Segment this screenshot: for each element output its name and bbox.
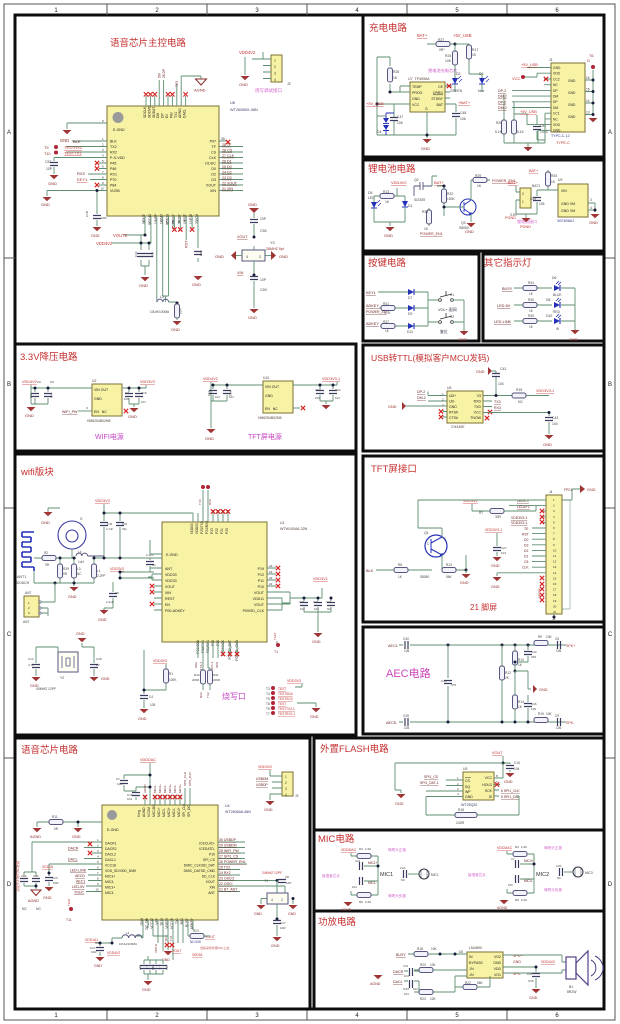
svg-text:VDD11: VDD11 <box>253 597 264 601</box>
svg-text:0R*: 0R* <box>439 48 445 52</box>
svg-text:T5: T5 <box>266 697 270 701</box>
svg-text:DACL1: DACL1 <box>105 858 116 862</box>
svg-text:NC: NC <box>518 400 523 404</box>
svg-text:C31: C31 <box>403 964 409 968</box>
svg-text:SDA: SDA <box>194 662 198 668</box>
svg-text:VCC: VCC <box>512 76 521 81</box>
svg-text:C27: C27 <box>280 921 286 925</box>
svg-text:104: 104 <box>314 607 319 611</box>
svg-text:RXD: RXD <box>474 400 482 404</box>
svg-text:3: 3 <box>590 198 592 202</box>
svg-text:4.7P: 4.7P <box>28 663 34 667</box>
svg-text:2.2PF: 2.2PF <box>97 574 106 578</box>
svg-text:Q3: Q3 <box>461 221 466 225</box>
svg-text:GND: GND <box>543 442 552 447</box>
svg-text:SPI1_CS: SPI1_CS <box>424 775 439 779</box>
svg-text:VDD3V3-1: VDD3V3-1 <box>536 389 554 393</box>
svg-text:ICECLKD-: ICECLKD- <box>199 842 215 846</box>
svg-text:VDD4V2: VDD4V2 <box>541 960 555 964</box>
svg-text:D6: D6 <box>552 276 556 280</box>
svg-text:C56: C56 <box>199 250 203 256</box>
svg-text:D7: D7 <box>408 296 412 300</box>
svg-text:21 脚屏: 21 脚屏 <box>470 602 497 612</box>
svg-text:T11: T11 <box>66 918 72 922</box>
svg-text:21 XIN: 21 XIN <box>222 187 233 191</box>
svg-text:125: 125 <box>531 707 536 711</box>
svg-text:3216CH: 3216CH <box>16 581 30 585</box>
svg-text:RX1: RX1 <box>110 173 117 177</box>
svg-text:SDCLK: SDCLK <box>143 106 147 118</box>
svg-text:104: 104 <box>552 422 558 426</box>
svg-text:P46: P46 <box>110 167 116 171</box>
svg-text:C59: C59 <box>260 288 267 292</box>
svg-text:5.1K: 5.1K <box>495 130 503 134</box>
svg-text:SPI1_CLK: SPI1_CLK <box>183 772 187 786</box>
svg-text:11: 11 <box>553 554 556 558</box>
svg-text:VCC: VCC <box>412 103 420 107</box>
svg-text:K1: K1 <box>450 293 454 297</box>
svg-text:26 D1: 26 D1 <box>222 159 232 163</box>
svg-text:C49: C49 <box>403 714 409 718</box>
svg-text:106: 106 <box>151 252 155 257</box>
svg-text:AGND: AGND <box>178 108 182 118</box>
svg-text:L4: L4 <box>78 550 82 554</box>
svg-text:VDDDAC: VDDDAC <box>341 848 357 852</box>
svg-text:E-GND: E-GND <box>166 553 178 557</box>
svg-text:MIC3: MIC3 <box>585 871 593 875</box>
svg-text:U1: U1 <box>280 521 285 525</box>
svg-text:RX2: RX2 <box>110 151 117 155</box>
svg-text:C43: C43 <box>552 416 558 420</box>
svg-text:VCC: VCC <box>474 411 482 415</box>
svg-text:33R: 33R <box>495 515 502 519</box>
svg-text:GND: GND <box>388 405 397 409</box>
svg-text:BLUE: BLUE <box>553 293 562 297</box>
svg-text:C21: C21 <box>313 600 319 604</box>
svg-text:GND: GND <box>94 397 102 401</box>
svg-text:A: A <box>7 130 11 136</box>
svg-text:GND: GND <box>138 717 147 721</box>
svg-text:RTS#: RTS# <box>449 411 458 415</box>
svg-text:RX2: RX2 <box>199 692 203 698</box>
svg-text:RX3: RX3 <box>77 171 86 176</box>
svg-text:MIC1+: MIC1+ <box>368 861 378 865</box>
svg-text:C63: C63 <box>315 388 321 392</box>
svg-text:WT2606BX-48N: WT2606BX-48N <box>230 108 258 112</box>
svg-text:MIC4-: MIC4- <box>173 785 177 793</box>
svg-text:R37: R37 <box>383 320 389 324</box>
svg-text:VCC: VCC <box>485 776 493 780</box>
svg-text:D0: D0 <box>524 538 528 542</box>
svg-text:VDD: VDD <box>553 72 561 76</box>
svg-text:P70: P70 <box>110 178 116 182</box>
svg-text:VDD33: VDD33 <box>190 523 194 534</box>
svg-text:LM4890: LM4890 <box>469 946 482 950</box>
svg-text:XOUT: XOUT <box>206 880 215 884</box>
svg-text:R2: R2 <box>44 551 48 555</box>
svg-text:GND: GND <box>460 581 469 585</box>
svg-text:Q1: Q1 <box>424 531 429 535</box>
svg-text:AGND: AGND <box>30 835 41 839</box>
svg-text:VDD: VDD <box>494 967 502 971</box>
svg-text:GND: GND <box>271 944 280 948</box>
svg-text:24MHZ 12PF: 24MHZ 12PF <box>262 871 282 875</box>
svg-text:GND: GND <box>553 129 561 133</box>
svg-text:GND: GND <box>553 66 561 70</box>
svg-text:P84: P84 <box>110 184 116 188</box>
svg-text:AEC1: AEC1 <box>76 880 85 884</box>
svg-text:GND: GND <box>41 202 50 207</box>
svg-text:C14: C14 <box>28 657 34 661</box>
svg-text:STDBY: STDBY <box>431 97 443 101</box>
svg-text:HM6254B02M5: HM6254B02M5 <box>258 416 282 420</box>
svg-text:SPK-: SPK- <box>566 721 575 725</box>
svg-text:C22: C22 <box>326 600 332 604</box>
svg-text:WTW100A6-32N: WTW100A6-32N <box>280 527 308 531</box>
svg-text:DM: DM <box>157 73 161 78</box>
svg-text:R36: R36 <box>528 298 534 302</box>
svg-text:ADKEY_: ADKEY_ <box>366 304 382 308</box>
svg-text:10UH/100MA: 10UH/100MA <box>119 942 137 946</box>
svg-text:2: 2 <box>259 255 261 259</box>
svg-text:23: 23 <box>269 570 273 574</box>
svg-text:20: 20 <box>553 604 557 608</box>
svg-text:REST: REST <box>165 597 175 601</box>
svg-text:17: 17 <box>553 588 557 592</box>
svg-text:BAT1: BAT1 <box>532 184 540 188</box>
svg-text:C28: C28 <box>96 657 102 661</box>
svg-text:29 USBDM: 29 USBDM <box>219 844 237 848</box>
svg-text:R21: R21 <box>193 929 199 933</box>
svg-text:DM: DM <box>553 106 558 110</box>
svg-text:VDD3V3: VDD3V3 <box>95 499 110 503</box>
svg-text:GND: GND <box>491 564 500 568</box>
svg-text:TFT屏接口: TFT屏接口 <box>371 463 417 475</box>
svg-text:26MHZ 9pf: 26MHZ 9pf <box>266 247 284 251</box>
svg-text:+5V_USB: +5V_USB <box>366 101 384 106</box>
svg-text:VPP-K: VPP-K <box>154 944 158 953</box>
svg-text:VDD4V2: VDD4V2 <box>107 951 120 955</box>
svg-text:R20: R20 <box>420 963 426 967</box>
svg-text:BAT+: BAT+ <box>417 33 428 38</box>
svg-text:SQ: SQ <box>465 785 470 789</box>
svg-text:C42: C42 <box>500 367 506 371</box>
svg-text:NC/10K: NC/10K <box>190 940 202 944</box>
svg-text:NC: NC <box>557 876 561 880</box>
svg-text:105: 105 <box>404 726 410 730</box>
svg-text:C40: C40 <box>403 637 409 641</box>
svg-text:VDD3V3: VDD3V3 <box>140 380 155 384</box>
svg-text:XIN: XIN <box>209 886 215 890</box>
svg-text:USBDM: USBDM <box>256 777 268 781</box>
svg-text:VDDDAC: VDDDAC <box>140 758 156 762</box>
svg-text:TESTSDA: TESTSDA <box>278 692 294 696</box>
svg-text:AEC电路: AEC电路 <box>386 667 431 680</box>
svg-text:22 OSCI: 22 OSCI <box>219 882 232 886</box>
svg-text:GND: GND <box>504 780 513 784</box>
svg-text:MIC3+: MIC3+ <box>167 807 171 817</box>
svg-text:TESTSCK: TESTSCK <box>278 697 294 701</box>
svg-text:SPI1_DAT: SPI1_DAT <box>188 772 192 786</box>
svg-text:1: 1 <box>522 200 524 204</box>
svg-text:GND: GND <box>589 220 598 225</box>
svg-text:105: 105 <box>150 703 156 707</box>
svg-text:TESTRX2-1: TESTRX2-1 <box>278 712 295 716</box>
svg-text:25 D0: 25 D0 <box>222 165 232 169</box>
svg-text:10: 10 <box>96 888 100 892</box>
svg-text:C64: C64 <box>335 388 341 392</box>
svg-text:D2: D2 <box>211 173 216 177</box>
svg-text:P10: P10 <box>258 585 264 589</box>
svg-text:ANT: ANT <box>208 891 215 895</box>
svg-text:T6: T6 <box>266 707 270 711</box>
svg-text:TYPC-C-12: TYPC-C-12 <box>551 134 570 138</box>
svg-text:TE: TE <box>524 527 529 531</box>
svg-text:VUSB: VUSB <box>110 189 120 193</box>
svg-text:VDD3V3-1: VDD3V3-1 <box>322 377 340 381</box>
svg-text:T1: T1 <box>274 650 278 654</box>
svg-text:C51: C51 <box>540 124 546 128</box>
svg-text:P10: P10 <box>209 853 215 857</box>
svg-text:10P: 10P <box>46 167 53 171</box>
svg-text:NC: NC <box>553 117 558 121</box>
svg-text:NC: NC <box>77 572 82 576</box>
svg-text:TESTTX1: TESTTX1 <box>64 151 82 156</box>
svg-text:R8: R8 <box>398 563 402 567</box>
svg-text:语音芯片电路: 语音芯片电路 <box>21 744 79 756</box>
svg-text:21 BT_ANT: 21 BT_ANT <box>219 888 238 892</box>
svg-text:R32: R32 <box>447 192 453 196</box>
svg-text:U7 TP4056A: U7 TP4056A <box>408 77 430 81</box>
svg-text:23 OSCO: 23 OSCO <box>219 877 234 881</box>
svg-text:EN NC: EN NC <box>94 410 107 414</box>
svg-text:A: A <box>608 130 612 136</box>
svg-text:XOUT: XOUT <box>206 184 217 188</box>
svg-text:LED-5V: LED-5V <box>497 304 511 308</box>
svg-text:咪咚头正极: 咪咚头正极 <box>388 847 406 852</box>
svg-text:106: 106 <box>315 396 320 400</box>
svg-text:RED: RED <box>553 310 561 314</box>
svg-text:U10: U10 <box>263 376 269 380</box>
svg-text:10K: 10K <box>430 963 437 967</box>
svg-text:105: 105 <box>508 883 513 887</box>
svg-text:2.2uF: 2.2uF <box>106 600 114 604</box>
svg-text:P23: P23 <box>210 528 214 534</box>
svg-text:wifi版块: wifi版块 <box>20 466 54 478</box>
svg-text:USBDP: USBDP <box>256 783 268 787</box>
svg-text:10: 10 <box>101 187 105 191</box>
svg-text:4: 4 <box>246 255 248 259</box>
svg-text:R19: R19 <box>538 712 544 716</box>
svg-text:R7: R7 <box>479 511 483 515</box>
svg-text:10R: 10R <box>91 950 97 954</box>
svg-text:TX1: TX1 <box>169 935 173 941</box>
svg-text:R18: R18 <box>417 947 423 951</box>
svg-text:MIC1DO: MIC1DO <box>152 804 156 817</box>
svg-text:R5: R5 <box>515 898 519 902</box>
svg-text:C39: C39 <box>165 965 169 970</box>
svg-text:BAT+: BAT+ <box>529 169 539 173</box>
svg-text:Y2: Y2 <box>60 676 64 680</box>
svg-text:烧写口: 烧写口 <box>222 691 246 701</box>
svg-text:BAT: BAT <box>436 103 443 107</box>
svg-text:GND: GND <box>171 327 180 332</box>
svg-text:G: G <box>425 107 428 111</box>
svg-text:VDDDAC: VDDDAC <box>497 846 513 850</box>
svg-text:CS: CS <box>465 779 471 783</box>
svg-text:CHRG: CHRG <box>433 91 444 95</box>
svg-text:GND: GND <box>94 964 102 968</box>
svg-text:TEST: TEST <box>67 898 71 906</box>
svg-text:ADKEY: ADKEY <box>366 322 379 326</box>
svg-text:充电电路: 充电电路 <box>369 22 408 34</box>
svg-text:P12: P12 <box>258 573 264 577</box>
svg-text:AGND: AGND <box>370 982 381 986</box>
svg-text:PGND: PGND <box>505 216 516 220</box>
svg-text:当唛头不用时NC处理: 当唛头不用时NC处理 <box>15 860 20 892</box>
svg-text:CH340E: CH340E <box>451 425 465 429</box>
svg-text:R12: R12 <box>505 671 511 675</box>
svg-text:200R: 200R <box>213 678 221 682</box>
svg-text:C23: C23 <box>355 859 361 863</box>
svg-text:U9: U9 <box>558 178 562 182</box>
svg-text:KEY1: KEY1 <box>366 291 376 295</box>
svg-text:AGND: AGND <box>497 906 508 910</box>
svg-text:GND: GND <box>587 488 596 492</box>
svg-text:MIC3-: MIC3- <box>105 880 114 884</box>
svg-text:PGND: PGND <box>520 225 531 229</box>
svg-text:2: 2 <box>444 537 446 541</box>
svg-text:ANT1: ANT1 <box>17 575 26 579</box>
svg-text:VDD18: VDD18 <box>42 865 53 869</box>
svg-text:104: 104 <box>404 992 409 996</box>
svg-text:SCK: SCK <box>215 662 219 668</box>
svg-text:Vreg: Vreg <box>137 810 141 817</box>
svg-text:105: 105 <box>404 649 410 653</box>
svg-text:锂电池电路: 锂电池电路 <box>368 163 416 175</box>
svg-text:BLK: BLK <box>110 140 117 144</box>
svg-text:200R: 200R <box>192 678 200 682</box>
svg-text:L3: L3 <box>160 295 164 299</box>
svg-text:10R: 10R <box>117 782 123 786</box>
svg-text:105: 105 <box>539 202 545 206</box>
svg-text:104: 104 <box>501 551 506 555</box>
svg-text:LED-5V: LED-5V <box>72 885 85 889</box>
svg-text:P20: P20 <box>225 528 229 534</box>
svg-text:MIC1: MIC1 <box>431 873 439 877</box>
svg-text:C10: C10 <box>21 874 27 878</box>
svg-text:功放电路: 功放电路 <box>318 916 357 928</box>
svg-text:MIC2-: MIC2- <box>153 785 157 793</box>
svg-text:VDD3V1: VDD3V1 <box>313 577 328 581</box>
svg-text:MIC3+: MIC3+ <box>105 875 115 879</box>
svg-text:TFT屏电源: TFT屏电源 <box>248 432 282 441</box>
svg-text:R13: R13 <box>446 563 452 567</box>
svg-text:VDD4V2: VDD4V2 <box>258 765 272 769</box>
svg-text:GND: GND <box>248 315 257 320</box>
svg-text:R35: R35 <box>528 314 534 318</box>
svg-text:GND: GND <box>491 585 500 589</box>
svg-text:104: 104 <box>498 382 504 386</box>
svg-text:MIC3-: MIC3- <box>163 785 167 793</box>
svg-text:2.2K: 2.2K <box>365 900 371 904</box>
svg-text:J4: J4 <box>549 490 553 494</box>
svg-text:GND: GND <box>395 802 404 806</box>
svg-text:1K: 1K <box>472 53 477 57</box>
svg-text:+5V_USB: +5V_USB <box>520 110 537 114</box>
svg-text:GND: GND <box>310 715 319 719</box>
svg-text:D10: D10 <box>546 314 552 318</box>
svg-text:E0: E0 <box>165 114 169 118</box>
svg-text:104S: 104S <box>540 130 549 134</box>
svg-text:26 POWER_EN1: 26 POWER_EN1 <box>219 860 246 864</box>
svg-text:P09/SD_CLK: P09/SD_CLK <box>243 609 265 613</box>
svg-text:VIN: VIN <box>561 189 567 193</box>
svg-text:3.3V降压电路: 3.3V降压电路 <box>20 351 78 363</box>
svg-text:GND: GND <box>215 254 224 259</box>
svg-text:E-GND: E-GND <box>107 828 119 832</box>
svg-text:DMIC_DATSD_CMD: DMIC_DATSD_CMD <box>184 869 216 873</box>
svg-text:23 D3: 23 D3 <box>222 176 232 180</box>
svg-text:CC2: CC2 <box>553 77 560 81</box>
svg-text:DP: DP <box>161 113 165 118</box>
svg-text:VOUT: VOUT <box>492 751 503 755</box>
svg-text:复位: 复位 <box>440 329 448 334</box>
svg-text:FPC1: FPC1 <box>564 488 572 492</box>
svg-text:14: 14 <box>553 571 557 575</box>
svg-text:2.2K: 2.2K <box>521 845 527 849</box>
svg-text:R34: R34 <box>528 281 534 285</box>
svg-text:R33: R33 <box>422 210 428 214</box>
svg-text:D3: D3 <box>524 544 528 548</box>
svg-text:C8: C8 <box>115 591 119 595</box>
svg-text:R6: R6 <box>359 900 363 904</box>
svg-text:GND: GND <box>265 394 273 398</box>
svg-text:U4: U4 <box>225 804 230 808</box>
svg-text:DM: DM <box>553 95 558 99</box>
svg-text:KEY1: KEY1 <box>77 177 88 182</box>
svg-text:GND: GND <box>568 115 576 119</box>
svg-text:C20: C20 <box>556 864 562 868</box>
svg-text:GND: GND <box>539 688 548 692</box>
svg-text:DM: DM <box>156 113 160 118</box>
svg-text:2P: 2P <box>96 663 100 667</box>
svg-text:4: 4 <box>285 793 287 797</box>
svg-text:MIC2+: MIC2+ <box>158 784 162 793</box>
svg-text:WP: WP <box>465 790 471 794</box>
svg-text:EN: EN <box>165 603 170 607</box>
svg-text:DM-2: DM-2 <box>417 396 426 400</box>
svg-text:VDD_SD/VDD_DMK: VDD_SD/VDD_DMK <box>105 869 137 873</box>
svg-text:咪咚头负极: 咪咚头负极 <box>544 887 562 892</box>
svg-text:2.2K: 2.2K <box>521 898 527 902</box>
svg-text:SDDAT: SDDAT <box>152 107 156 118</box>
svg-text:GND: GND <box>239 82 248 87</box>
svg-text:C2A: C2A <box>400 866 406 870</box>
svg-text:106: 106 <box>29 393 33 398</box>
svg-text:C1B: C1B <box>85 211 89 217</box>
svg-text:15: 15 <box>586 88 590 92</box>
svg-text:咪咚头正极: 咪咚头正极 <box>544 845 562 850</box>
svg-text:XIN: XIN <box>210 189 216 193</box>
svg-text:U6: U6 <box>447 386 451 390</box>
svg-text:R29: R29 <box>475 174 481 178</box>
svg-text:2: 2 <box>285 781 287 785</box>
svg-text:WIFI_PW: WIFI_PW <box>62 410 78 414</box>
svg-text:IC34: IC34 <box>403 987 409 991</box>
svg-text:24: 24 <box>269 564 273 568</box>
svg-text:VOL+-配网: VOL+-配网 <box>438 307 457 312</box>
